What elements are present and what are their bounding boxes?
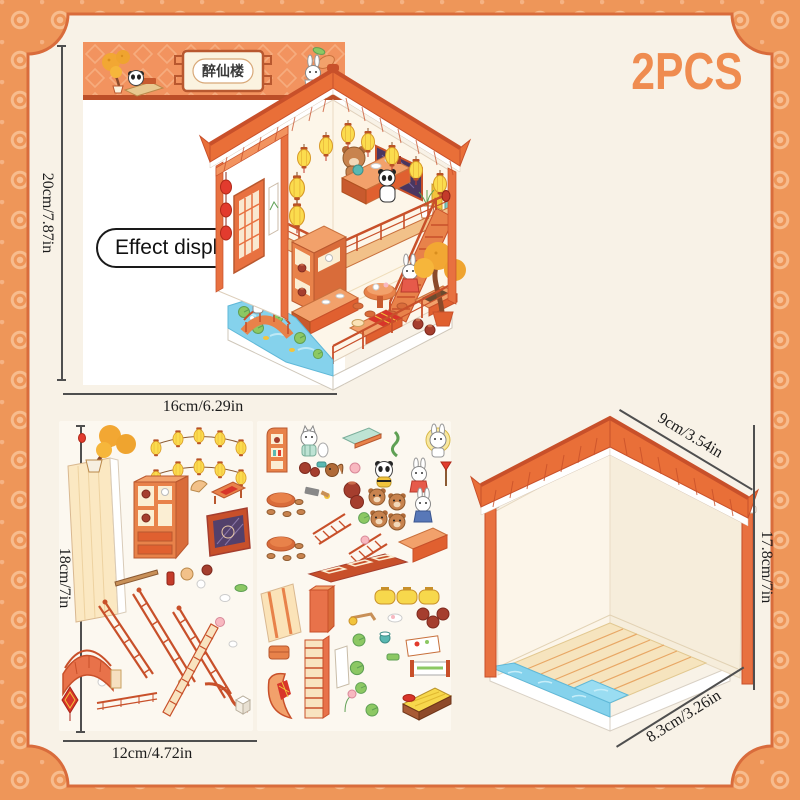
sticker-bunny-blue	[414, 488, 432, 522]
sticker-short-rail	[97, 693, 157, 710]
sticker-big-pots	[344, 481, 364, 508]
sticker-ribbon	[392, 432, 398, 456]
dim-label-card-height: 20cm/7.87in	[38, 153, 56, 273]
sticker-pots-shoe	[300, 462, 327, 477]
sticker-boat	[268, 674, 291, 718]
house-illustration	[200, 60, 470, 385]
sticker-striped-mat	[261, 584, 301, 642]
sticker-pink-item	[350, 463, 360, 473]
sticker-cabinet	[134, 476, 188, 558]
red-lanterns	[221, 172, 232, 240]
sticker-lattice-panel	[309, 554, 407, 582]
dim-line-room-height	[753, 425, 755, 690]
sticker-lotus-flower	[345, 690, 356, 712]
house-right-post	[448, 168, 456, 304]
lattice-window	[234, 179, 264, 273]
dim-line-sheet-width	[63, 740, 257, 742]
room-box-illustration	[468, 395, 788, 750]
sticker-squirrel	[326, 464, 343, 477]
sticker-box	[310, 586, 334, 632]
sticker-cube	[236, 696, 250, 714]
sticker-bench	[191, 481, 245, 504]
sticker-shelf-unit	[267, 428, 287, 472]
sticker-sheet-right	[257, 422, 453, 730]
sticker-wood-panel	[68, 458, 126, 622]
pcs-count-badge: 2PCS	[626, 42, 749, 102]
dim-label-room-height: 17.8cm/7in	[757, 507, 775, 627]
sticker-table-set	[267, 493, 305, 517]
sticker-bunny-red	[410, 458, 428, 492]
sticker-bed	[403, 688, 451, 720]
dim-line-card-height	[61, 45, 63, 380]
sticker-bridge	[63, 650, 121, 694]
sticker-table-set	[267, 537, 305, 561]
sticker-white-strip	[335, 646, 349, 688]
sticker-scroll	[410, 660, 450, 677]
sticker-misc	[349, 608, 449, 660]
dim-tick	[76, 731, 85, 733]
sticker-suitcase	[269, 646, 289, 659]
page-background: 2PCS	[0, 0, 800, 800]
sticker-cat	[301, 426, 328, 457]
sticker-tools	[304, 487, 330, 499]
sticker-mat-blue	[343, 428, 381, 448]
sticker-ladder	[305, 636, 329, 718]
sticker-sheet-left	[55, 422, 253, 730]
dim-label-sheet-width: 12cm/4.72in	[82, 745, 222, 763]
hanging-gourd	[442, 191, 450, 202]
sticker-panda-bee	[375, 461, 393, 487]
dim-tick	[57, 379, 66, 381]
dim-label-card-width: 16cm/6.29in	[133, 398, 273, 416]
sticker-counter	[399, 528, 447, 562]
sticker-vane	[441, 462, 451, 486]
sticker-bunny-ruff	[426, 424, 450, 457]
dim-tick	[57, 45, 66, 47]
sticker-window	[207, 508, 250, 556]
sticker-stairs	[163, 624, 218, 716]
sticker-jars	[375, 587, 439, 604]
dim-line-card-width	[63, 393, 337, 395]
